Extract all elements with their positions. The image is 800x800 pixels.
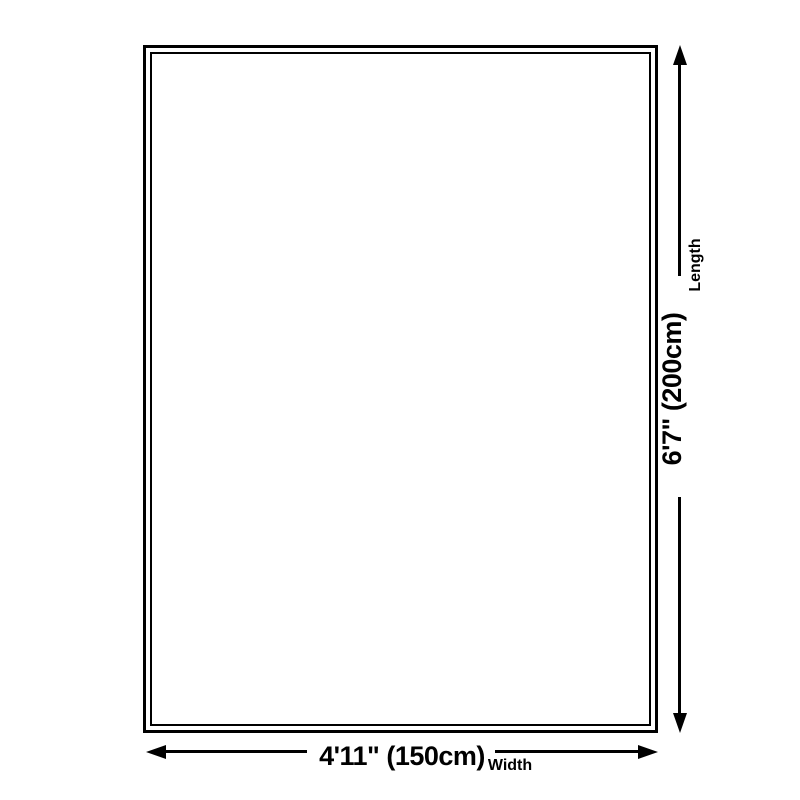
length-dimension-line-top — [678, 62, 681, 276]
arrow-down-icon — [673, 713, 687, 733]
rug-outline — [143, 45, 658, 733]
width-label: Width — [450, 757, 570, 775]
rug-inner-border — [150, 52, 651, 726]
arrow-left-icon — [146, 745, 166, 759]
width-dimension-line-right — [495, 750, 640, 753]
length-value: 6'7" (200cm) — [656, 279, 688, 499]
product-size-diagram: Length 6'7" (200cm) 4'11" (150cm) Width — [0, 0, 800, 800]
length-dimension-line-bottom — [678, 497, 681, 716]
arrow-right-icon — [638, 745, 658, 759]
length-label: Length — [687, 205, 705, 325]
